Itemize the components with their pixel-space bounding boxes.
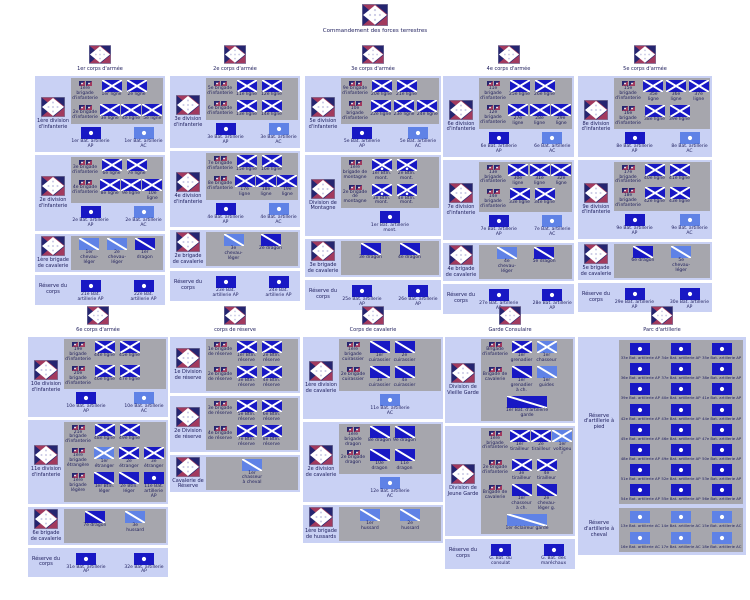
unit-flag-label: 39e ligne (669, 118, 690, 123)
corps-reserve-block: Réserve du corps21e Bat. artillerie AP22… (35, 275, 165, 305)
artillery-row: 10e Bat. artillerie AP10e Bat. artilleri… (64, 389, 166, 415)
unit-flag-saltire-icon (237, 155, 257, 167)
unit-flag-cell: 46e Bat. artillerie AP (661, 424, 702, 441)
unit-flag-cell: 39e Bat. artillerie AP (620, 383, 661, 400)
brigade-label-cell: 2e brigade d'infanterie (72, 104, 98, 121)
brigade-label: 11e brigade d'infanterie (480, 87, 506, 102)
unit-flag-cell: 6e ligne (100, 159, 123, 177)
unit-flag-cell: 14e ligne (260, 100, 283, 118)
unit-title-cell: 2e brigade de cavalerie (172, 232, 204, 266)
brigade-label-cell: Brigade de cavalerie (482, 366, 508, 383)
unit-flag-cell: 34e Bat. artillerie AP (661, 343, 702, 360)
unit-flag-cell: 31e ligne (530, 164, 550, 187)
brigade-label-cell: 3e brigade de réserve (207, 400, 233, 417)
brigade-label: 1ère brigade légère (65, 479, 91, 494)
unit-flag-diag-icon (370, 426, 390, 438)
unit-flag-cell: 6e dragon (631, 246, 654, 264)
unit-flag-cell: 45e ligne (118, 341, 141, 359)
unit-flag-saltire-icon (102, 159, 122, 171)
brigade-label-cell: 14e brigade d'infanterie (480, 188, 506, 210)
unit-flag-dot-icon (81, 206, 101, 218)
unit-flag-label: 16e Bat. artillerie AC (621, 545, 660, 549)
unit-flag-cell: 2e chevau-léger (106, 238, 129, 266)
brigade-panel: 1e brigade de réserve1er Btln. réserve2e… (206, 339, 298, 391)
unit-flag-label: 2e cuirassier (393, 354, 416, 364)
unit-flag-label: 6e ligne (102, 172, 120, 177)
corps-column-corps-4: 4e corps d'armée6e division d'infanterie… (443, 45, 574, 317)
regimental-flag-icon (34, 509, 58, 529)
brigade-label: 15e brigade d'infanterie (615, 87, 641, 102)
unit-title-cell: Réserve du corps (307, 282, 339, 308)
corps-header-label: 1er corps d'armée (77, 66, 123, 72)
unit-flag-label: 43e ligne (669, 200, 690, 205)
unit-flag-cell: 1er Bat. artillerie AP (71, 127, 110, 150)
brigade-mini-flags-icon (207, 176, 233, 181)
unit-flag-saltire-icon (551, 164, 571, 176)
unit-flag-dot-icon (671, 484, 691, 496)
division-content: 17e brigade d'infanterie40e ligne41e lig… (614, 162, 710, 238)
unit-flag-cell: 2e ligne (125, 80, 148, 98)
regimental-flag-icon (176, 95, 200, 115)
brigade-panel: 1ère brigade d'infanterie1er ligne2e lig… (71, 78, 163, 124)
unit-flag-dot-icon (216, 276, 236, 288)
brigade-row: 1ère brigade légère1er Btln. léger2e Btl… (65, 472, 165, 500)
unit-title: 6e division d'infanterie (445, 122, 477, 134)
strip-flag-row: 3e dragon4e dragon (341, 241, 439, 275)
unit-flag-saltire-icon (530, 104, 550, 116)
brigade-label: 21e brigade d'infanterie (65, 431, 91, 446)
corps-header-label: Parc d'artillerie (643, 327, 681, 333)
unit-flag-cell: 1er ligne (100, 80, 123, 98)
unit-flag-label: 7e Bat. artillerie AP (479, 228, 519, 238)
cavalry-brigade-block: 1ère brigade de cavalerie1er chevau-lége… (35, 234, 165, 272)
unit-flag-diag-icon (224, 234, 244, 246)
unit-flag-cell: 2e dragon (259, 234, 282, 252)
unit-flag-cell: 2e Bat. artillerie AC (124, 206, 163, 229)
brigade-label-cell: 1ère brigade légère (65, 472, 91, 494)
cavalry-brigade-block: 3e brigade de cavalerie3e dragon4e drago… (305, 239, 441, 277)
unit-flag-saltire-icon (120, 424, 140, 436)
unit-flag-dot-icon (680, 288, 700, 300)
unit-flag-label: 2e dragon (259, 247, 282, 252)
unit-flag-cell: 53e Bat. artillerie AP (701, 464, 742, 481)
unit-flag-diag-icon (537, 366, 557, 378)
regimental-flag-icon (176, 232, 200, 252)
division-block: 2e division d'infanterie3e brigade d'inf… (35, 155, 165, 232)
brigade-label-cell: 1ère brigade cuirassier (340, 341, 366, 363)
brigade-mini-flags-icon (615, 165, 641, 170)
unit-title: 2e brigade de cavalerie (172, 254, 204, 266)
artillery-row: 4e Bat. artillerie AP4e Bat. artillerie … (206, 200, 298, 226)
unit-flag-label: 4e Btln. réserve (260, 379, 283, 389)
unit-flag-label: 4e dragon (398, 256, 421, 261)
unit-flag-label: 37e ligne (688, 93, 709, 103)
unit-flag-label: 26e ligne (534, 93, 555, 98)
unit-title: Division de Montagne (307, 201, 339, 213)
unit-flag-label: 53e Bat. artillerie AP (702, 477, 741, 481)
unit-title: 1ère brigade de hussards (305, 529, 337, 541)
brigade-label: 17e brigade d'infanterie (615, 171, 641, 186)
corps-header-label: 6e corps d'armée (76, 327, 120, 333)
unit-flag-diag-icon (85, 511, 105, 523)
brigade-label: 2e brigade d'infanterie (482, 466, 508, 476)
brigade-mini-flags-icon (480, 165, 506, 170)
cavalry-brigade-block: 4e brigade de cavalerie4e chevau-léger5e… (443, 243, 574, 281)
unit-flag-label: 1er Btln. mont. (370, 172, 393, 182)
unit-flag-cell: 1er cuirassier (368, 341, 391, 364)
unit-flag-saltire-icon (237, 400, 257, 412)
regimental-flag-icon (224, 306, 246, 325)
brigade-row: 17e brigade d'infanterie40e ligne41e lig… (615, 164, 709, 186)
artillery-row: 6e Bat. artillerie AP6e Bat. artillerie … (479, 129, 572, 155)
unit-flag-label: 2e Btln. réserve (260, 354, 283, 364)
brigade-label-cell: 19e brigade d'infanterie (65, 341, 91, 363)
brigade-panel: Brigade d'infanterie1er grenadier1er cha… (481, 339, 573, 421)
unit-flag-cell: 1er chasseur à ch. (510, 484, 533, 512)
corps-column-parc-artillerie: Parc d'artillerieRéserve d'artillerie à … (578, 306, 746, 558)
strip-content: 1er chasseur à cheval (206, 457, 298, 491)
unit-flag-cell: 14e Bat. artillerie AC (661, 511, 702, 528)
unit-flag-cell: 9e dragon (393, 426, 416, 444)
unit-flag-cell: 25e Bat. artillerie AP (341, 285, 383, 308)
unit-flag-label: 1er Bat. artillerie AC (124, 140, 163, 150)
unit-flag-diag-icon (360, 509, 380, 521)
unit-flag-label: 33e ligne (509, 201, 530, 206)
unit-flag-dot-icon (630, 511, 650, 523)
unit-flag-label: 1er Btln. léger (93, 485, 116, 495)
unit-flag-cell: 36e Bat. artillerie AP (620, 363, 661, 380)
unit-flag-cell: 38e ligne (643, 105, 666, 123)
unit-flag-label: 45e Bat. artillerie AP (621, 437, 660, 441)
unit-flag-cell: 3e dragon (359, 243, 382, 261)
regimental-flag-icon (309, 507, 333, 527)
unit-flag-dot-icon (712, 511, 732, 523)
brigade-label-cell: 1ère brigade dragon (340, 426, 366, 448)
unit-flag-cell: 26e Bat. artillerie AP (397, 285, 439, 308)
root-node: Commandement des forces terrestres (0, 4, 750, 34)
unit-flag-label: 13e ligne (236, 113, 257, 118)
unit-flag-dot-icon (671, 363, 691, 375)
unit-flag-cell: 1er étranger (93, 447, 116, 470)
brigade-label-cell: 18e brigade d'infanterie (615, 187, 641, 209)
unit-flag-label: 3e ligne (101, 117, 119, 122)
artillery-row: 1er Bat. artillerie AP1er Bat. artilleri… (71, 124, 163, 150)
unit-title-cell: Réserve du corps (37, 277, 69, 303)
unit-flag-saltire-icon (256, 175, 276, 187)
corps-header: 1er corps d'armée (35, 45, 165, 72)
unit-title-cell: Réserve du corps (30, 550, 62, 576)
unit-flag-dot-icon (408, 127, 428, 139)
unit-flag-cell: 43e ligne (668, 187, 691, 205)
unit-flag-label: 2e ligne (127, 93, 145, 98)
unit-flag-label: 46e Bat. artillerie AP (661, 437, 700, 441)
unit-flag-cell: 2e Btln. réserve (260, 341, 283, 364)
brigade-label: 1ère brigade d'infanterie (72, 87, 98, 102)
unit-flag-cell: 44e Bat. artillerie AP (701, 404, 742, 421)
unit-flag-diag-icon (507, 396, 547, 408)
unit-flag-dot-icon (81, 127, 101, 139)
regimental-flag-icon (87, 306, 109, 325)
unit-flag-label: 7e Bat. artillerie AC (533, 228, 573, 238)
artillery-row: 8e Bat. artillerie AP8e Bat. artillerie … (614, 129, 710, 155)
unit-flag-label: 1er grenadier (510, 354, 533, 364)
unit-flag-diag-icon (361, 243, 381, 255)
unit-flag-dot-icon (671, 424, 691, 436)
division-block: 10e division d'infanterie19e brigade d'i… (28, 337, 168, 417)
unit-flag-saltire-icon (645, 105, 665, 117)
unit-flag-cell: 4e Bat. artillerie AC (259, 203, 298, 226)
unit-title-cell: 7e division d'infanterie (445, 162, 477, 239)
regimental-flag-icon (449, 183, 473, 203)
unit-flag-label: 38e Bat. artillerie AP (702, 376, 741, 380)
unit-flag-label: 1er dragon (133, 251, 156, 261)
unit-flag-diag-icon (370, 341, 390, 353)
unit-flag-label: 2e Btln. léger (118, 485, 141, 495)
brigade-panel: 1ère brigade dragon8e dragon9e dragon2e … (339, 424, 441, 475)
unit-title-cell: 1ère division d'infanterie (37, 78, 69, 150)
brigade-label-cell: 1ère brigade d'infanterie (482, 430, 508, 452)
strip-content: 3e chevau-léger2e dragon (206, 232, 298, 266)
unit-flag-cell: 2e cuirassier (393, 341, 416, 364)
unit-flag-cell: 48e ligne (93, 424, 116, 442)
unit-flag-label: 44e Bat. artillerie AP (702, 417, 741, 421)
unit-flag-label: 1er Bat. artillerie AP (71, 140, 110, 150)
unit-flag-cell: 2e hussard (399, 509, 422, 532)
unit-flag-dot-icon (542, 215, 562, 227)
division-content: 1ère brigade d'infanterie1er ligne2e lig… (71, 78, 163, 150)
unit-flag-label: 38e ligne (644, 118, 665, 123)
regimental-flag-icon (362, 4, 388, 26)
strip-flag-row: 4e chevau-léger5e dragon (479, 245, 572, 279)
unit-flag-cell: 4e tirailleur (535, 459, 558, 482)
strip-flag-row: 1er chevau-léger2e chevau-léger1er drago… (71, 236, 163, 270)
unit-flag-label: 3e chevau-léger (222, 247, 245, 262)
unit-flag-cell: 4e cuirassier (393, 366, 416, 389)
unit-flag-saltire-icon (262, 155, 282, 167)
unit-flag-dot-icon (630, 383, 650, 395)
unit-flag-label: 2e chevau-léger g. (535, 497, 558, 512)
brigade-label-cell: 17e brigade d'infanterie (615, 164, 641, 186)
corps-header: 4e corps d'armée (443, 45, 574, 72)
division-block: 5e division d'infanterie9e brigade d'inf… (305, 76, 441, 152)
unit-flag-dot-icon (408, 285, 428, 297)
unit-flag-dot-icon (625, 214, 645, 226)
unit-flag-cell: 10e Bat. artillerie AP (64, 392, 108, 415)
brigade-panel: 11e brigade d'infanterie25e ligne26e lig… (479, 78, 572, 129)
strip-flag-row: 1er hussard2e hussard (339, 507, 441, 541)
unit-flag-dot-icon (489, 215, 509, 227)
regimental-flag-icon (584, 100, 608, 120)
unit-flag-label: 5e dragon (533, 260, 556, 265)
brigade-row: 2e brigade de montagne3e Btln. mont.4e B… (342, 184, 438, 207)
unit-flag-diag-icon (395, 341, 415, 353)
brigade-label-cell: 6e brigade d'infanterie (207, 100, 233, 117)
regimental-flag-icon (176, 172, 200, 192)
unit-flag-cell: 3e Btln. mont. (370, 184, 393, 207)
unit-flag-label: 21e Bat. artillerie AP (71, 293, 110, 303)
brigade-label: 16e brigade d'infanterie (615, 112, 641, 127)
unit-flag-dot-icon (134, 206, 154, 218)
unit-flag-label: 35e Bat. artillerie AP (702, 356, 741, 360)
unit-flag-label: 45e ligne (119, 354, 140, 359)
unit-flag-cell: 3e ligne (100, 104, 119, 122)
unit-flag-label: 8e Bat. artillerie AP (614, 145, 655, 155)
unit-flag-dot-icon (712, 464, 732, 476)
unit-flag-label: 56e Bat. artillerie AP (702, 497, 741, 501)
strip-content: 23e Bat. artillerie AP24e Bat. artilleri… (206, 273, 298, 299)
unit-flag-dot-icon (380, 211, 400, 223)
unit-flag-saltire-icon (94, 447, 114, 459)
regimental-flag-icon (89, 45, 111, 64)
brigade-panel: 19e brigade d'infanterie44e ligne45e lig… (64, 339, 166, 389)
unit-flag-saltire-icon (237, 425, 257, 437)
unit-flag-dot-icon (712, 404, 732, 416)
corps-header-label: 4e corps d'armée (487, 66, 531, 72)
unit-flag-saltire-icon (119, 447, 139, 459)
unit-flag-saltire-icon (643, 80, 663, 92)
unit-title: Réserve du corps (580, 292, 612, 304)
division-content: Brigade d'infanterie1er grenadier1er cha… (481, 339, 573, 421)
regimental-flag-icon (499, 306, 521, 325)
unit-flag-label: 12e Bat. artillerie AC (367, 490, 413, 500)
corps-header: 2e corps d'armée (170, 45, 300, 72)
brigade-label: 5e brigade d'infanterie (207, 87, 233, 97)
unit-flag-dot-icon (269, 203, 289, 215)
unit-flag-cell: 1er Btln. léger (93, 472, 116, 495)
park-section: Réserve d'artillerie à cheval13e Bat. ar… (581, 508, 743, 551)
unit-title: 3e division d'infanterie (172, 117, 204, 129)
unit-flag-cell: 18e ligne (256, 175, 275, 198)
unit-flag-cell: 17e Bat. artillerie AC (661, 532, 702, 549)
unit-flag-cell: 22e ligne (370, 100, 391, 118)
unit-flag-label: 1er chasseur (535, 354, 558, 364)
unit-flag-saltire-icon (237, 100, 257, 112)
division-content: 9e brigade d'infanterie20e ligne21e lign… (341, 78, 439, 150)
unit-flag-cell: 9e Bat. artillerie AC (669, 214, 710, 237)
unit-flag-label: 13e Bat. artillerie AC (621, 524, 660, 528)
strip-flag-row: 31e Bat. artillerie AP32e Bat. artilleri… (64, 550, 166, 576)
unit-flag-dot-icon (216, 123, 236, 135)
unit-flag-diag-icon (79, 238, 99, 250)
unit-flag-saltire-icon (512, 459, 532, 471)
regimental-flag-icon (176, 457, 200, 477)
unit-flag-diag-icon (512, 484, 532, 496)
unit-flag-cell: 47e Bat. artillerie AP (701, 424, 742, 441)
unit-flag-cell: 36e ligne (666, 80, 687, 103)
division-content: 1ère brigade d'infanterie1er tirailleur2… (481, 428, 573, 534)
regimental-flag-icon (634, 45, 656, 64)
unit-flag-label: G. Bat. du consulat (481, 557, 520, 567)
unit-flag-cell: G. Bat. du consulat (481, 544, 520, 567)
brigade-label: 10e brigade d'infanterie (342, 107, 368, 122)
unit-title-cell: 6e division d'infanterie (445, 78, 477, 155)
unit-flag-saltire-icon (277, 175, 297, 187)
unit-flag-cell: 2e Btln. léger (118, 472, 141, 495)
unit-flag-dot-icon (489, 132, 509, 144)
unit-title-cell: Division de Jeune Garde (447, 428, 479, 534)
unit-flag-saltire-icon (237, 341, 257, 353)
brigade-row: 18e brigade d'infanterie42e ligne43e lig… (615, 187, 709, 209)
brigade-row: 4e brigade de réserve7e Btln. réserve8e … (207, 425, 297, 448)
unit-flag-diag-icon (671, 246, 691, 258)
unit-flag-label: 1er chasseur à cheval (241, 472, 264, 487)
unit-title: 2e Division de réserve (172, 429, 204, 441)
regimental-flag-icon (311, 241, 335, 261)
unit-flag-label: 36e ligne (666, 93, 687, 103)
unit-flag-label: 1er guides (535, 379, 558, 389)
unit-flag-label: 2e chevau-léger (106, 251, 129, 266)
unit-flag-dot-icon (712, 424, 732, 436)
regimental-flag-icon (449, 100, 473, 120)
unit-flag-cell: 49e ligne (118, 424, 141, 442)
unit-title-cell: 2e division de cavalerie (305, 424, 337, 501)
unit-flag-dot-icon (144, 472, 164, 484)
unit-flag-label: 11e ligne (236, 93, 257, 98)
brigade-row: 2e brigade cuirassier3e cuirassier4e cui… (340, 366, 440, 389)
unit-title-cell: 2e Division de réserve (172, 398, 204, 450)
unit-flag-diag-icon (395, 366, 415, 378)
brigade-label: 2e brigade cuirassier (340, 373, 366, 383)
artillery-row: 1er Bat. artillerie mont. (341, 208, 439, 234)
unit-title: Réserve du corps (307, 289, 339, 301)
unit-flag-label: 34e Bat. artillerie AP (661, 356, 700, 360)
unit-title: Réserve du corps (172, 280, 204, 292)
brigade-label: 2e brigade d'infanterie (72, 111, 98, 121)
unit-flag-label: 50e Bat. artillerie AP (702, 457, 741, 461)
unit-flag-label: 8e Btln. réserve (260, 438, 283, 448)
unit-flag-label: 9e Bat. artillerie AC (669, 227, 710, 237)
unit-flag-label: 18e Bat. artillerie AC (702, 545, 741, 549)
unit-flag-cell: 32e ligne (551, 164, 571, 187)
strip-flag-row: 25e Bat. artillerie AP26e Bat. artilleri… (341, 282, 439, 308)
corps-header-label: 2e corps d'armée (213, 66, 257, 72)
unit-flag-label: 1er voltigeur (553, 443, 572, 458)
unit-flag-cell: 45e Bat. artillerie AP (620, 424, 661, 441)
unit-flag-cell: 54e Bat. artillerie AP (620, 484, 661, 501)
unit-flag-saltire-icon (262, 80, 282, 92)
unit-flag-dot-icon (712, 484, 732, 496)
unit-flag-label: 7e Btln. réserve (235, 438, 258, 448)
unit-title-cell: 4e division d'infanterie (172, 153, 204, 226)
unit-title-cell: 10e division d'infanterie (30, 339, 62, 415)
unit-flag-cell: 25e ligne (508, 80, 531, 98)
unit-title: 11e division d'infanterie (30, 467, 62, 479)
unit-flag-label: 1er grenadier à ch. (510, 379, 533, 394)
unit-flag-label: 41e Bat. artillerie AP (702, 396, 741, 400)
unit-flag-cell: 41e ligne (668, 164, 691, 182)
unit-flag-label: 10e dragon (368, 462, 391, 472)
unit-flag-dot-icon (489, 289, 509, 301)
unit-flag-saltire-icon (95, 365, 115, 377)
unit-flag-dot-icon (76, 553, 96, 565)
brigade-mini-flags-icon (65, 425, 91, 430)
corps-header: 6e corps d'armée (28, 306, 168, 333)
strip-flag-row: 7e dragon3e hussard (64, 509, 166, 543)
unit-flag-label: 37e Bat. artillerie AP (661, 376, 700, 380)
unit-title-cell: 3e division d'infanterie (172, 78, 204, 146)
corps-header-label: 3e corps d'armée (351, 66, 395, 72)
unit-flag-saltire-icon (510, 80, 530, 92)
brigade-label-cell: 21e brigade d'infanterie (65, 424, 91, 446)
division-block: 6e division d'infanterie11e brigade d'in… (443, 76, 574, 157)
unit-title: 7e division d'infanterie (445, 205, 477, 217)
strip-content: 1er hussard2e hussard (339, 507, 441, 541)
brigade-mini-flags-icon (340, 427, 366, 432)
brigade-row: 1e brigade de réserve1er Btln. réserve2e… (207, 341, 297, 364)
brigade-row: 6e brigade d'infanterie13e ligne14e lign… (207, 100, 297, 118)
brigade-label-cell: 1ère brigade étrangère (65, 447, 91, 469)
unit-flag-label: 1er hussard (358, 522, 381, 532)
